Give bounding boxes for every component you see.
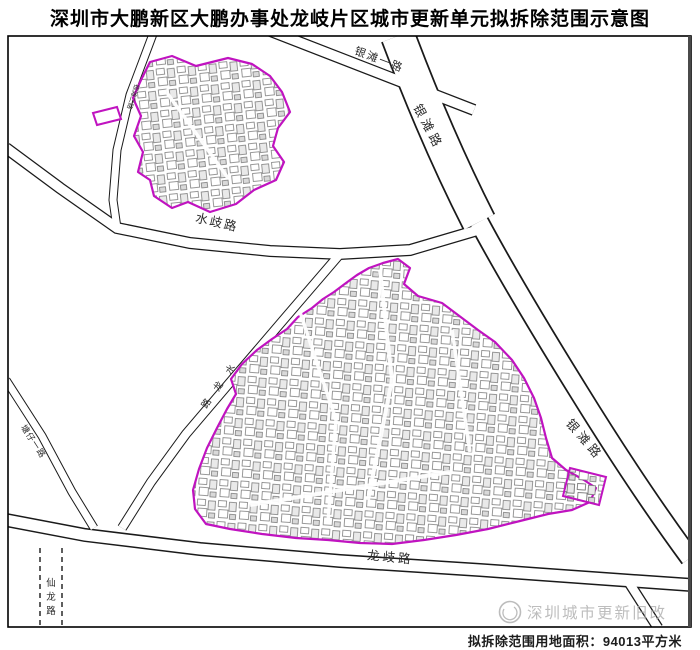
watermark-text: 深圳城市更新旧改 <box>527 604 667 622</box>
road-label-xianlong-char-0: 仙 <box>46 577 56 589</box>
map-canvas: 深圳城市更新旧改 银滩一路银滩路银滩路银滩二路水歧路龙歧路塘仔一路水龙路仙龙路 <box>0 0 700 650</box>
road-label-xianlong-char-2: 路 <box>46 605 56 617</box>
area-caption: 拟拆除范围用地面积：94013平方米 <box>468 631 682 650</box>
road-label-xianlong-char-1: 龙 <box>46 591 56 603</box>
schematic-map-page: 深圳市大鹏新区大鹏办事处龙岐片区城市更新单元拟拆除范围示意图 <box>0 0 700 650</box>
